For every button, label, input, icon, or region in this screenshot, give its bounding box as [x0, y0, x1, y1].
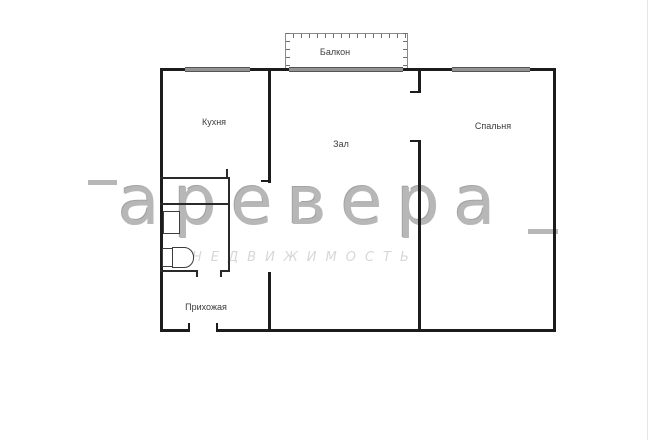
bathroom-divider-wall [160, 203, 230, 205]
kitchen-hall-wall-upper [268, 68, 271, 183]
bedroom-door-jamb-bottom [410, 140, 418, 142]
bathroom-door-jamb-left [196, 270, 198, 277]
bedroom-door-jamb-top [410, 91, 418, 93]
bathroom-wall-bottom-left [160, 270, 198, 272]
outer-wall-bottom-left-segment [160, 329, 190, 332]
bathroom-wall-right [228, 177, 230, 272]
balcony-railing-top [285, 33, 408, 38]
room-label-hall: Зал [311, 139, 371, 149]
watermark-dash-left [88, 180, 117, 185]
floorplan-image: аревера НЕДВИЖИМОСТЬ Балкон Кухня Зал Сп… [0, 0, 653, 440]
entrance-door-jamb-left [188, 323, 190, 332]
bathroom-door-jamb-right [220, 270, 222, 277]
balcony-door-window [289, 67, 403, 72]
outer-wall-left [160, 68, 163, 332]
room-label-kitchen: Кухня [184, 117, 244, 127]
entrance-door-jamb-right [216, 323, 218, 332]
bedroom-hall-wall-stub [418, 68, 421, 93]
bathroom-top-door-jamb [226, 169, 228, 177]
sink-icon [163, 211, 180, 234]
kitchen-door-jamb [261, 180, 268, 182]
bedroom-hall-wall-lower [418, 140, 421, 332]
room-label-bedroom: Спальня [458, 121, 528, 131]
room-label-entry: Прихожая [171, 302, 241, 312]
outer-wall-right [553, 68, 556, 332]
bathroom-wall-top [160, 177, 230, 179]
room-label-balcony: Балкон [285, 47, 385, 57]
bedroom-window [452, 67, 530, 72]
entry-hall-wall-lower [268, 272, 271, 332]
scan-edge-artifact [647, 0, 648, 440]
watermark-subtitle-text: НЕДВИЖИМОСТЬ [192, 250, 418, 265]
balcony-railing-right [403, 33, 408, 68]
toilet-bowl-icon [172, 247, 194, 268]
kitchen-window [185, 67, 250, 72]
